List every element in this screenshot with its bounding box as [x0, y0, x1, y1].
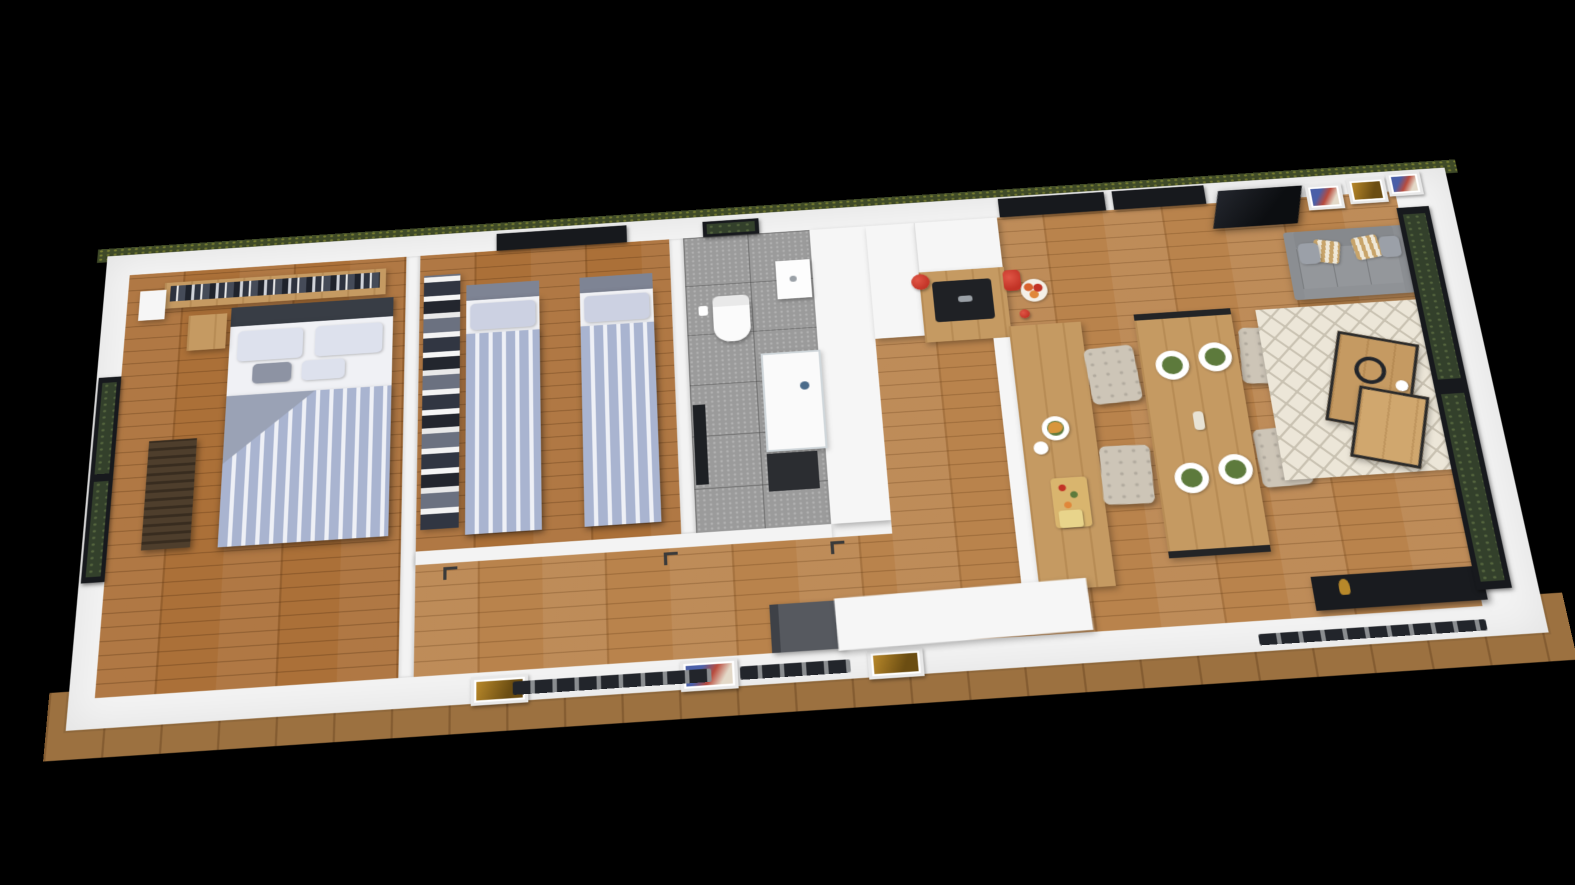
wash-basin: [775, 259, 812, 299]
toilet: [712, 294, 751, 342]
building-shell: [66, 168, 1549, 731]
wall-tv: [1213, 185, 1302, 228]
kids-duvet-2: [581, 322, 662, 527]
hall-frame-gold-2: [867, 647, 925, 679]
red-stand-mixer: [1002, 269, 1022, 291]
bed-pillow-left: [237, 327, 304, 361]
bath-mat: [767, 451, 820, 492]
toilet-cistern: [712, 294, 749, 307]
living-frame-1: [1304, 183, 1345, 211]
cat-figurine: [1337, 578, 1351, 595]
master-window-greenery: [95, 382, 117, 474]
kids-pillow-1: [470, 300, 535, 331]
entry-bench: [769, 600, 844, 653]
table-centerpiece: [1192, 411, 1205, 430]
place-setting-3: [1172, 462, 1211, 495]
master-window-greenery2: [86, 481, 109, 577]
sofa-pillow-gray-1: [1297, 243, 1321, 265]
bathroom-window-greenery: [707, 221, 756, 234]
door-handle-3: [830, 541, 845, 555]
upper-cabinets: [914, 218, 1003, 273]
coffee-table-small: [1350, 385, 1429, 469]
storage-chest: [141, 438, 197, 550]
box-files: [138, 290, 167, 321]
place-setting-4: [1216, 453, 1255, 486]
door-handle-1: [443, 566, 457, 580]
dining-chair-2: [1098, 444, 1155, 505]
tiny-house-plan: [63, 168, 1557, 767]
coffee-cup-kitchen: [1033, 441, 1049, 455]
nightstand: [186, 313, 227, 351]
kitchen-sink: [932, 278, 996, 322]
kids-duvet-1: [465, 329, 542, 535]
sofa: [1283, 225, 1416, 300]
single-bed-2: [580, 288, 662, 526]
double-bed: [218, 316, 394, 547]
shower: [761, 350, 828, 452]
place-setting-1: [1154, 350, 1192, 381]
sofa-pillow-gray-2: [1378, 236, 1403, 258]
living-frame-2: [1346, 177, 1389, 205]
kitchen-counter: [919, 267, 1012, 343]
shower-drain: [800, 381, 810, 390]
sink-faucet: [958, 295, 973, 302]
living-frame-2-art: [1352, 181, 1383, 200]
kids-pillow-2: [584, 292, 650, 322]
hall-frame-gold-2-art: [873, 653, 919, 674]
living-frame-1-art: [1310, 187, 1339, 205]
bed-pillow-right: [314, 322, 382, 356]
door-handle-2: [664, 552, 678, 566]
living-frame-3: [1385, 171, 1424, 197]
kids-bookshelf: [420, 274, 460, 530]
cheese-block: [1058, 509, 1084, 528]
place-setting-2: [1196, 341, 1234, 372]
bed-cushion-white: [301, 358, 345, 381]
toilet-paper-holder: [698, 306, 708, 316]
exterior-window-2: [740, 659, 851, 680]
floorplan-render: [0, 0, 1575, 885]
single-bed-1: [465, 296, 542, 535]
living-frame-3-art: [1391, 175, 1418, 192]
basin-faucet: [789, 275, 797, 282]
bed-cushion-gray: [252, 362, 292, 384]
